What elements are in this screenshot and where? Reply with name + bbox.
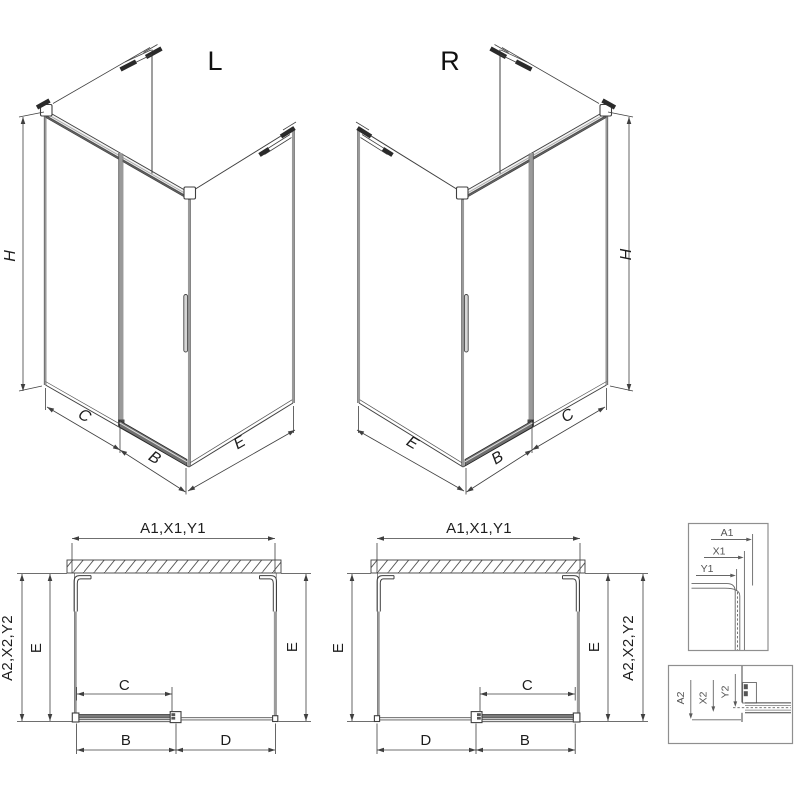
- technical-drawing-page: L: [0, 0, 800, 800]
- plan-left-width-label: A1,X1,Y1: [140, 520, 206, 537]
- iso-right-title: R: [440, 46, 460, 76]
- dim-label-height: H: [2, 250, 19, 262]
- detail-dim-a2: A2: [675, 691, 687, 704]
- detail-dim-y1: Y1: [701, 563, 714, 575]
- plan-left-right-depth-label: E: [284, 642, 301, 652]
- plan-right-fixed-width-label: D: [420, 732, 431, 749]
- detail-dim-x1: X1: [713, 546, 726, 558]
- plan-left-fixed-width-label: D: [220, 732, 231, 749]
- plan-left-door-width-label: B: [121, 732, 131, 749]
- plan-left-inner-depth-label: E: [28, 643, 45, 653]
- dim-label-height: H: [616, 248, 633, 260]
- plan-left-opening-label: C: [119, 677, 130, 694]
- detail-dim-x2: X2: [698, 691, 710, 704]
- plan-right-opening-label: C: [522, 677, 533, 694]
- plan-right-outer-depth-label: A2,X2,Y2: [620, 615, 637, 681]
- plan-right-width-label: A1,X1,Y1: [446, 520, 512, 537]
- wall-section-hatched: [371, 560, 585, 573]
- detail-view-bottom-track: A2 X2 Y2: [669, 666, 793, 744]
- detail-dim-a1: A1: [721, 527, 734, 539]
- plan-right-inner-depth-label: E: [586, 642, 603, 652]
- detail-dim-y2: Y2: [720, 685, 732, 698]
- detail-top-frame: [689, 524, 769, 651]
- detail-view-wall-profile: A1 X1 Y1: [689, 524, 769, 651]
- iso-left-title: L: [207, 46, 222, 76]
- detail-bottom-frame: [669, 666, 793, 744]
- plan-left-outer-depth-label: A2,X2,Y2: [0, 615, 16, 681]
- door-handle: [464, 295, 468, 353]
- plan-right-left-depth-label: E: [330, 643, 347, 653]
- wall-section-hatched: [67, 560, 281, 573]
- plan-right-door-width-label: B: [520, 732, 530, 749]
- door-handle: [184, 295, 188, 353]
- shower-enclosure-diagram: L: [0, 0, 800, 800]
